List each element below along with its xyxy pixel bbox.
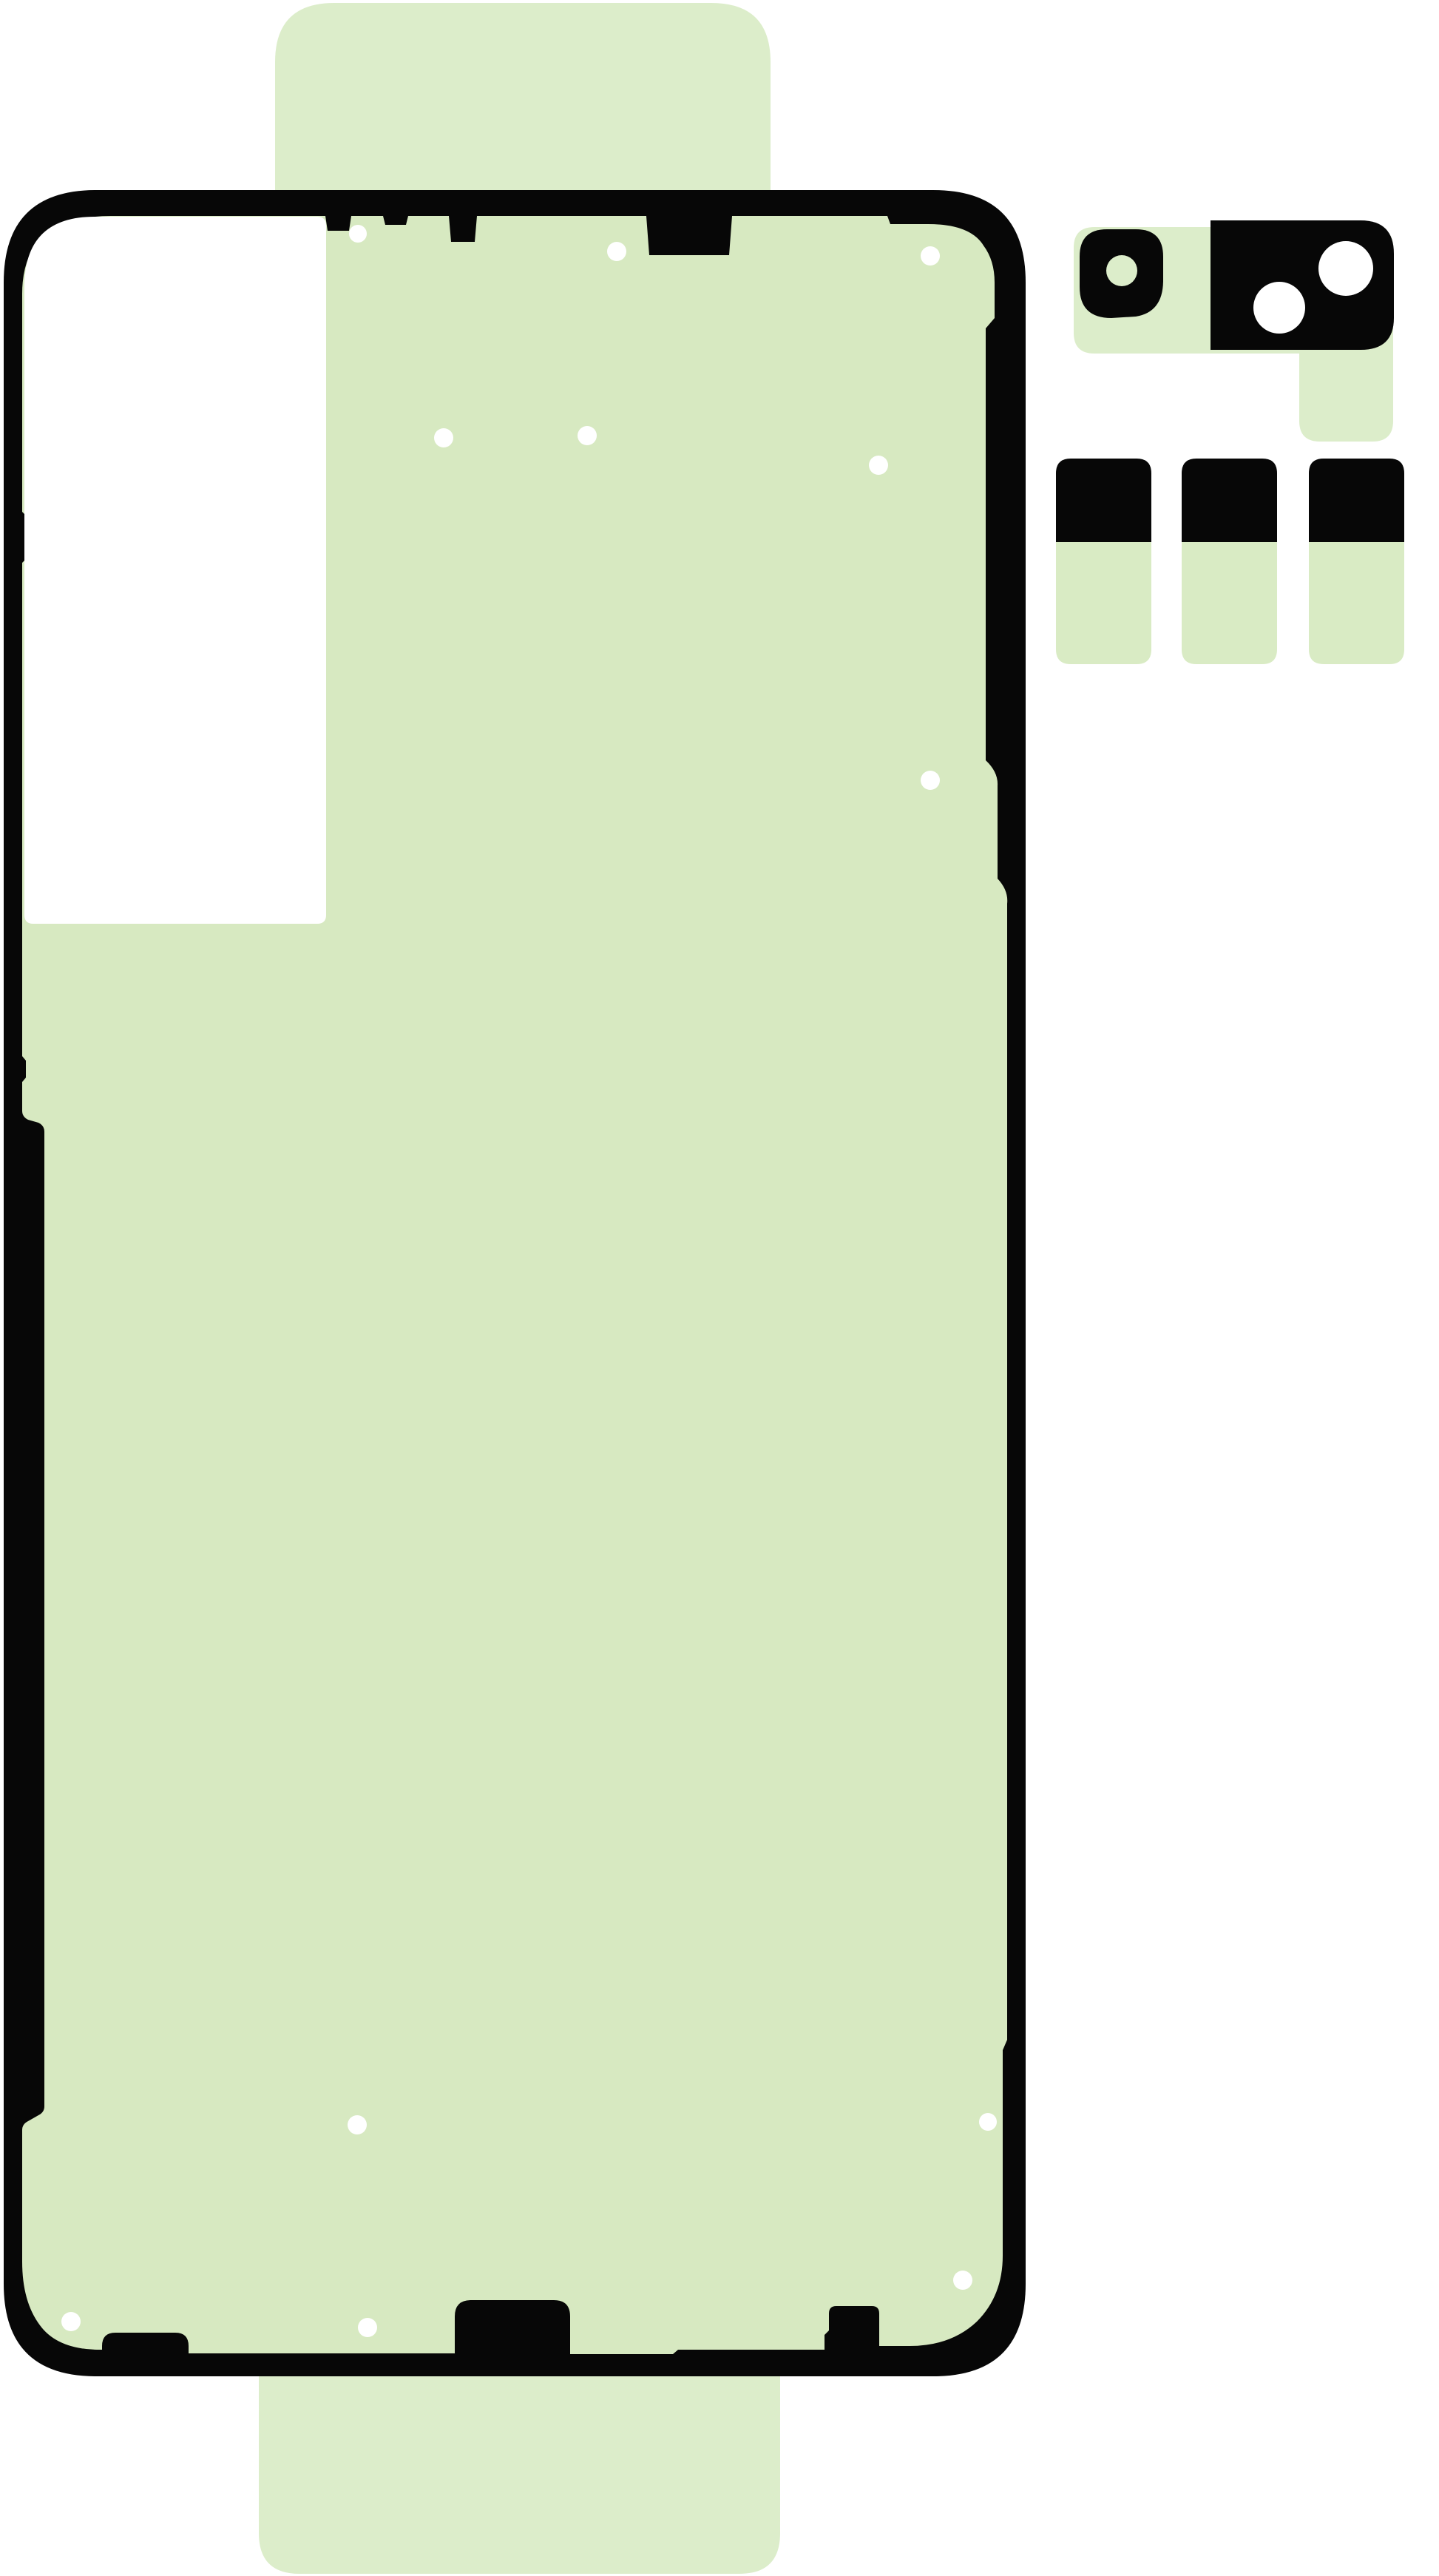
adhesive-strip-liner (1309, 542, 1404, 664)
adhesive-strip-2 (1182, 459, 1277, 664)
camera-lens-hole (1318, 241, 1373, 296)
adhesive-strip-liner (1056, 542, 1151, 664)
adhesive-strip-1 (1056, 459, 1151, 664)
camera-lens-hole (1253, 282, 1305, 334)
flash-hole (1106, 255, 1137, 286)
adhesive-strip-black (1056, 459, 1151, 542)
alignment-dot (921, 246, 940, 266)
product-image (0, 0, 1439, 2576)
top-pull-tab (275, 3, 771, 207)
adhesive-strip-black (1309, 459, 1404, 542)
alignment-dot (578, 426, 597, 445)
alignment-dot (348, 2115, 367, 2134)
bottom-pull-tab (259, 2363, 780, 2574)
alignment-dot (869, 456, 888, 475)
adhesive-strip-liner (1182, 542, 1277, 664)
alignment-dot (979, 2113, 997, 2131)
alignment-dot (349, 225, 367, 243)
alignment-dot (607, 242, 626, 261)
alignment-dot (953, 2271, 972, 2290)
adhesive-strip-3 (1309, 459, 1404, 664)
alignment-dot (921, 771, 940, 790)
alignment-dot (434, 428, 453, 447)
alignment-dot (358, 2318, 377, 2337)
alignment-dot (61, 2312, 81, 2331)
adhesive-strip-black (1182, 459, 1277, 542)
adhesive-free-window (24, 217, 326, 924)
